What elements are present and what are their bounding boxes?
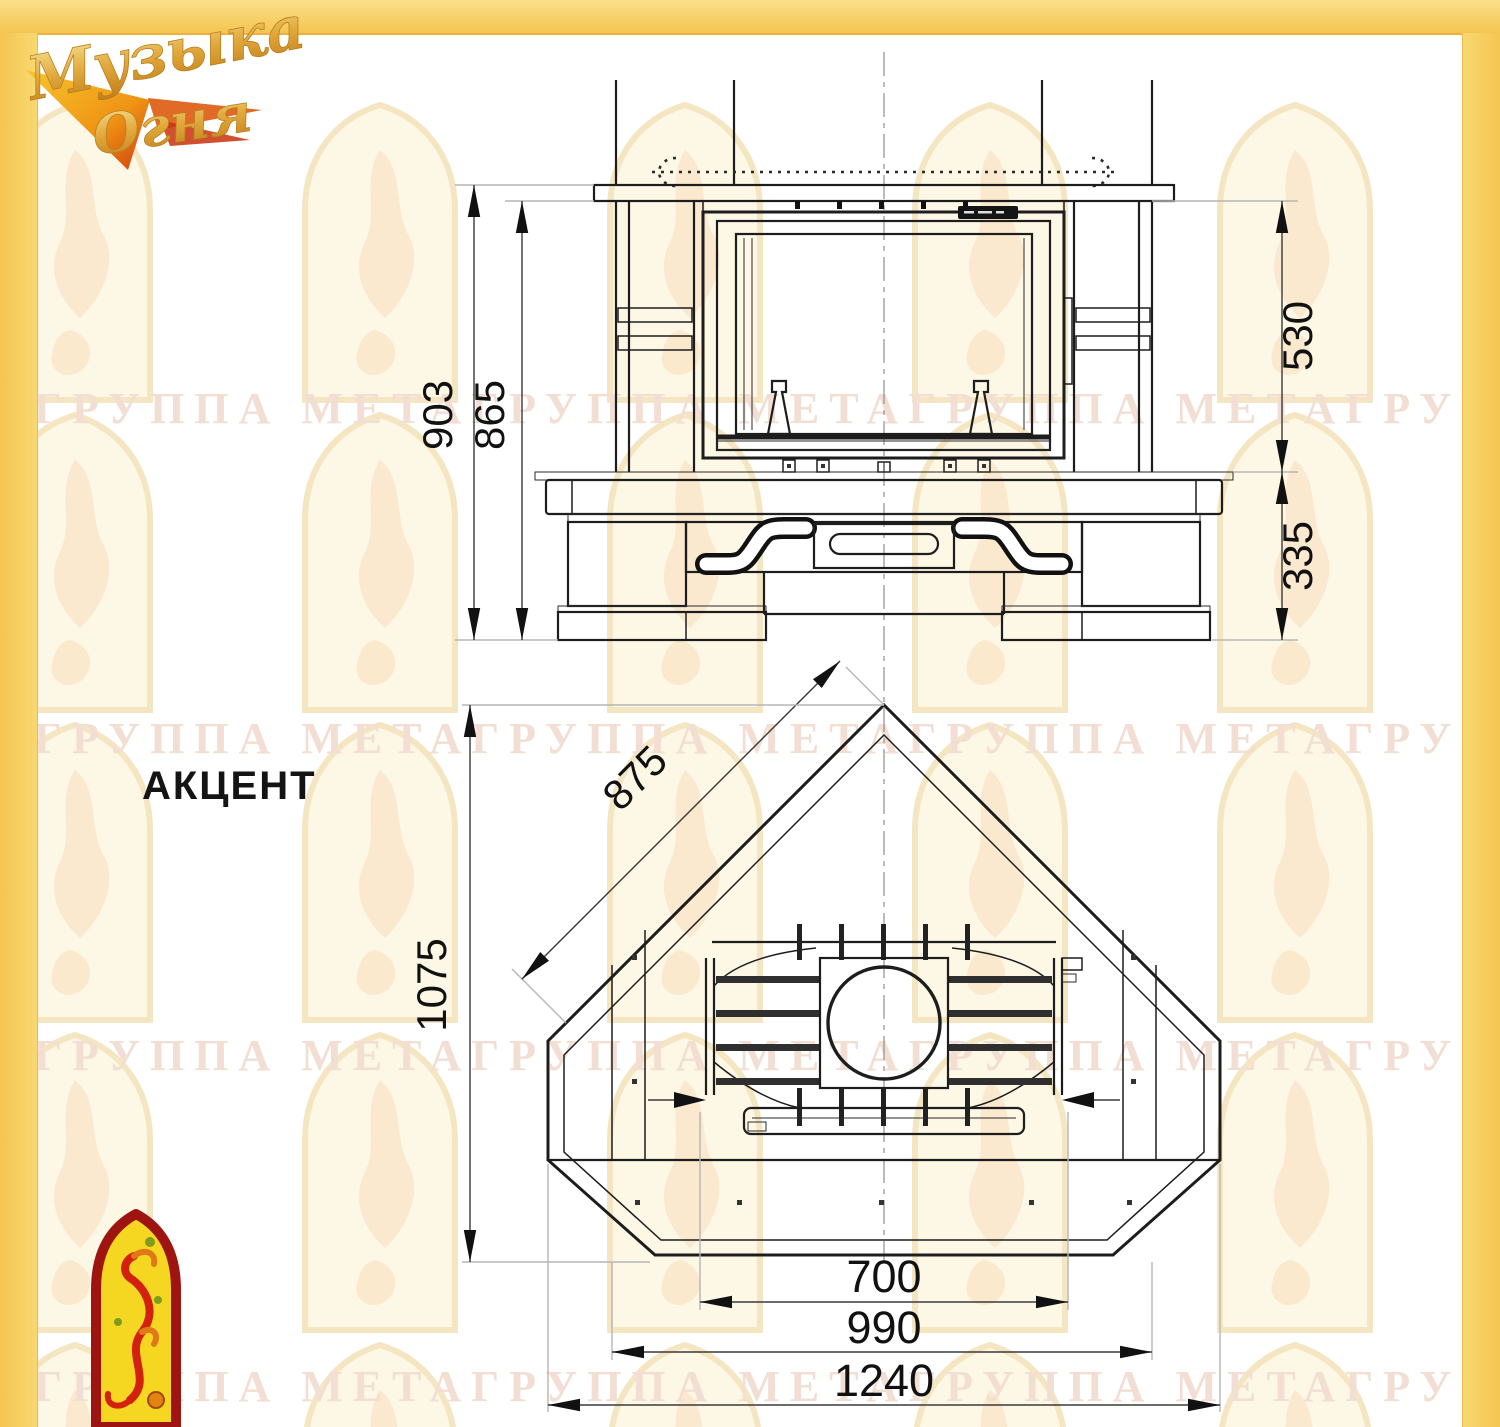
brick-pillar-right (1082, 522, 1200, 606)
emblem-orange-ball (148, 1392, 164, 1408)
dim-depth: 1075 (408, 938, 455, 1031)
dim-total-height: 903 (414, 380, 461, 450)
andiron-right (970, 381, 992, 434)
plinth-left (558, 612, 766, 640)
page: ГРУППА МЕТАГРУППА МЕТАГРУППА МЕТАГРУППА … (0, 0, 1500, 1427)
dim-opening-width: 700 (846, 1251, 921, 1302)
plan-view: 875 1075 700 990 1 (408, 657, 1220, 1412)
dim-face-width: 990 (846, 1302, 921, 1353)
andiron-left (768, 381, 790, 434)
fireplace-technical-drawing: Музыка Огня (0, 0, 1500, 1427)
flue-outlet-circle (828, 967, 940, 1079)
model-name: АКЦЕНТ (142, 764, 317, 809)
plan-dim-875: 875 (512, 657, 884, 1023)
door-notch (748, 1122, 766, 1131)
front-dims-right: 530 335 (1152, 201, 1321, 640)
stove-top-vents (795, 201, 968, 209)
brick-pillar-left (568, 522, 686, 606)
dim-side-edge: 875 (593, 736, 676, 819)
dim-body-height: 865 (466, 380, 513, 450)
dim-insert-height: 530 (1274, 301, 1321, 371)
stove-insert (703, 201, 1072, 472)
dim-base-height: 335 (1274, 521, 1321, 591)
plinth-right (1002, 612, 1210, 640)
dim-overall-width: 1240 (834, 1355, 934, 1406)
stove-door-frame (717, 221, 1050, 450)
stove-feet (783, 460, 990, 472)
logo-muzyka-ognya: Музыка Огня (20, 0, 311, 170)
fire-dancer-emblem (96, 1214, 176, 1427)
opening-arrow-left (674, 1092, 706, 1108)
opening-arrow-right (1062, 1092, 1094, 1108)
damper-tab (1062, 958, 1082, 970)
front-elevation: 903 865 530 335 (414, 80, 1321, 640)
